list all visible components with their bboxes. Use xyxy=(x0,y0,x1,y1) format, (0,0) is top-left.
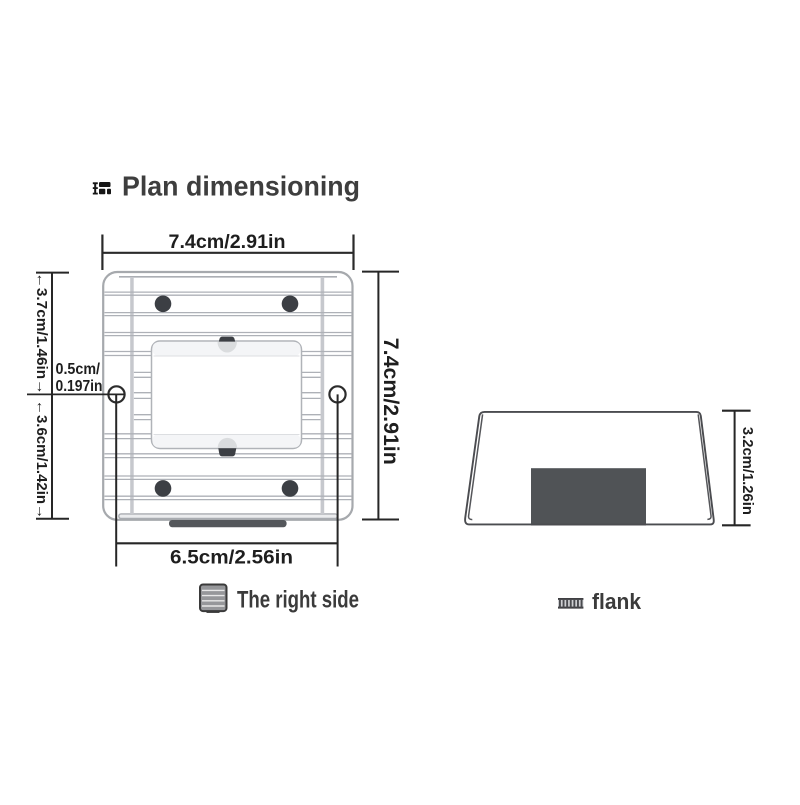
svg-text:flank: flank xyxy=(592,589,642,614)
svg-text:The right side: The right side xyxy=(237,587,359,614)
svg-text:←3.6cm/1.42in→: ←3.6cm/1.42in→ xyxy=(33,400,50,519)
svg-text:←3.7cm/1.46in→: ←3.7cm/1.46in→ xyxy=(33,273,50,395)
svg-text:0.5cm/: 0.5cm/ xyxy=(56,361,101,378)
svg-text:3.2cm/1.26in: 3.2cm/1.26in xyxy=(739,427,756,515)
svg-text:Plan dimensioning: Plan dimensioning xyxy=(122,171,360,202)
svg-text:0.197in: 0.197in xyxy=(56,378,103,395)
svg-text:7.4cm/2.91in: 7.4cm/2.91in xyxy=(169,231,286,253)
svg-text:7.4cm/2.91in: 7.4cm/2.91in xyxy=(379,338,402,465)
svg-text:6.5cm/2.56in: 6.5cm/2.56in xyxy=(170,547,293,569)
